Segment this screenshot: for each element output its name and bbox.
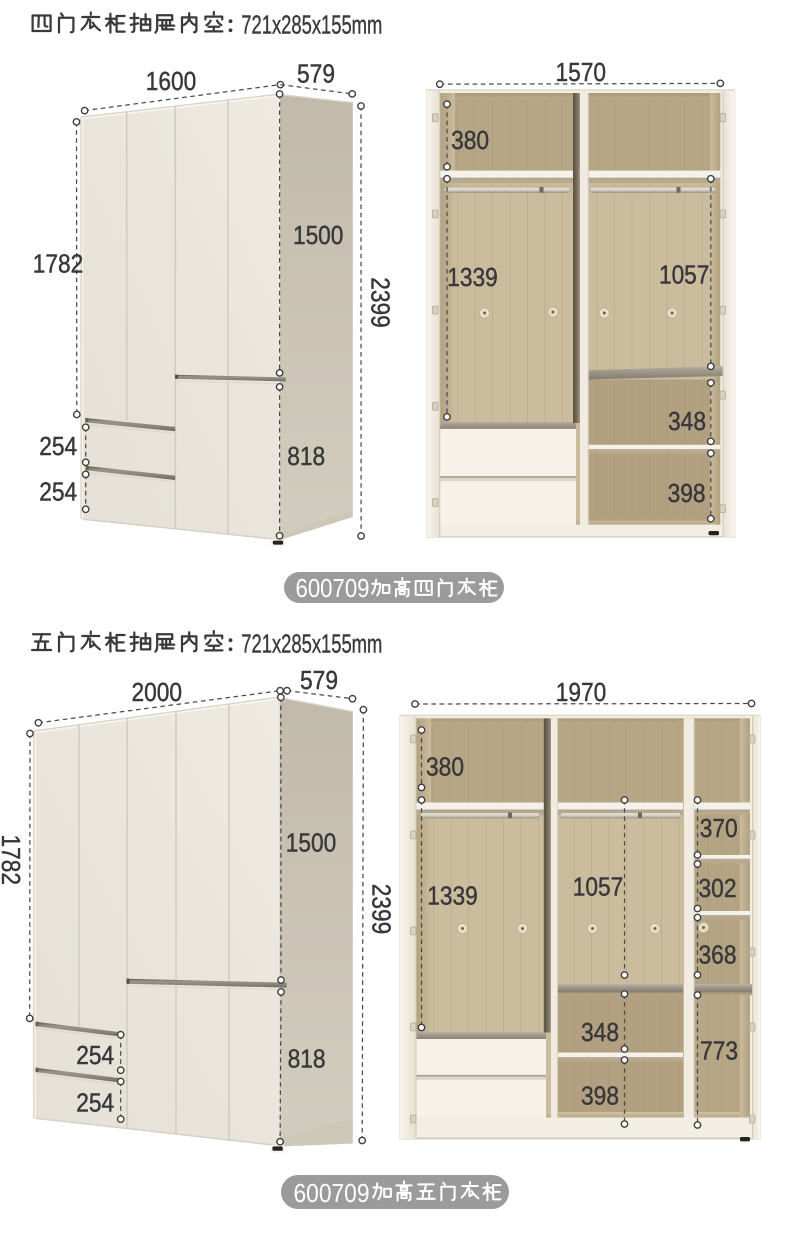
svg-text:254: 254 — [76, 1040, 114, 1070]
svg-text:2399: 2399 — [365, 277, 395, 328]
svg-text:773: 773 — [700, 1035, 738, 1065]
svg-text:721x285x155mm: 721x285x155mm — [241, 629, 382, 659]
svg-text:2399: 2399 — [367, 884, 397, 935]
svg-text:398: 398 — [668, 478, 706, 508]
svg-text:579: 579 — [300, 665, 338, 695]
svg-text:818: 818 — [288, 1044, 326, 1074]
svg-text:380: 380 — [426, 751, 464, 781]
svg-text:380: 380 — [451, 125, 489, 155]
svg-text:579: 579 — [297, 59, 335, 89]
svg-text:370: 370 — [700, 813, 738, 843]
svg-text:818: 818 — [287, 441, 325, 471]
svg-text:1600: 1600 — [146, 66, 197, 96]
svg-text:348: 348 — [668, 406, 706, 436]
svg-text:398: 398 — [581, 1080, 619, 1110]
svg-text:721x285x155mm: 721x285x155mm — [241, 10, 382, 40]
svg-text:1500: 1500 — [286, 828, 337, 858]
svg-text:1570: 1570 — [556, 57, 607, 87]
svg-text:1057: 1057 — [659, 260, 710, 290]
svg-text:254: 254 — [39, 431, 77, 461]
svg-text:2000: 2000 — [132, 677, 183, 707]
svg-text:1500: 1500 — [293, 220, 344, 250]
svg-text:1339: 1339 — [427, 880, 478, 910]
svg-text:1782: 1782 — [33, 249, 84, 279]
svg-text:254: 254 — [39, 477, 77, 507]
svg-text:1057: 1057 — [573, 871, 624, 901]
svg-text:600709: 600709 — [294, 1178, 370, 1208]
svg-text:254: 254 — [76, 1088, 114, 1118]
svg-text:302: 302 — [699, 873, 737, 903]
svg-text:1782: 1782 — [0, 834, 26, 885]
svg-text:600709: 600709 — [296, 573, 370, 603]
svg-text:368: 368 — [699, 939, 737, 969]
svg-text:1339: 1339 — [447, 262, 498, 292]
svg-text:348: 348 — [581, 1017, 619, 1047]
svg-text:1970: 1970 — [556, 677, 607, 707]
